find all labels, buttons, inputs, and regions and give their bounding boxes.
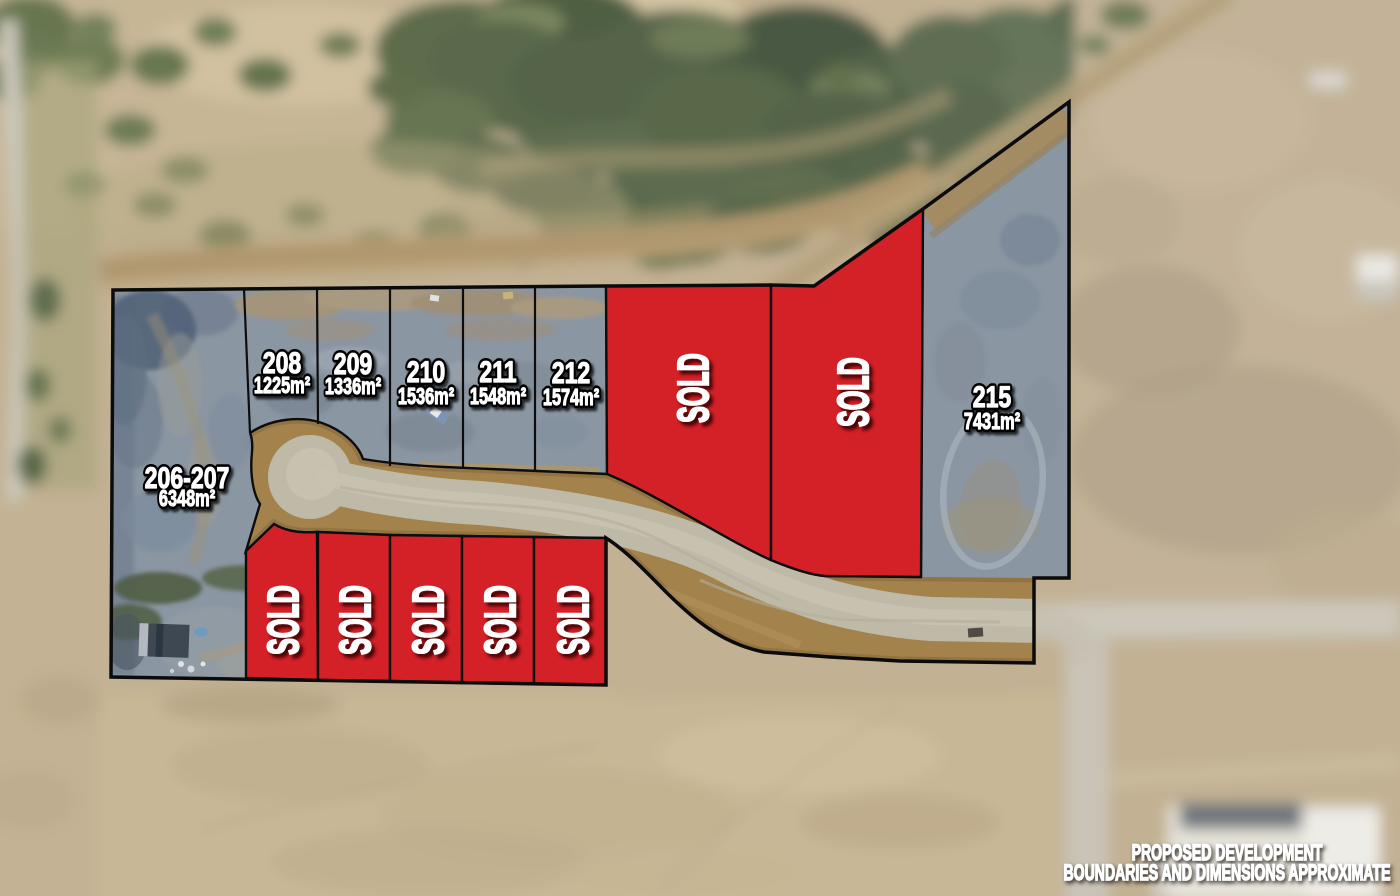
svg-text:7431m²: 7431m² <box>964 409 1021 434</box>
svg-text:SOLD: SOLD <box>549 585 598 655</box>
svg-text:SOLD: SOLD <box>476 585 525 655</box>
svg-text:SOLD: SOLD <box>331 585 380 655</box>
svg-text:1536m²: 1536m² <box>398 384 455 409</box>
svg-text:BOUNDARIES AND DIMENSIONS APPR: BOUNDARIES AND DIMENSIONS APPROXIMATE <box>1064 860 1391 885</box>
svg-text:SOLD: SOLD <box>259 585 308 655</box>
svg-text:SOLD: SOLD <box>404 585 453 655</box>
svg-text:1336m²: 1336m² <box>325 374 382 399</box>
svg-text:SOLD: SOLD <box>669 353 718 423</box>
svg-text:1574m²: 1574m² <box>543 385 600 410</box>
svg-text:6348m²: 6348m² <box>159 486 216 511</box>
svg-text:1225m²: 1225m² <box>254 373 311 398</box>
svg-text:1548m²: 1548m² <box>470 384 527 409</box>
svg-text:SOLD: SOLD <box>829 357 878 427</box>
